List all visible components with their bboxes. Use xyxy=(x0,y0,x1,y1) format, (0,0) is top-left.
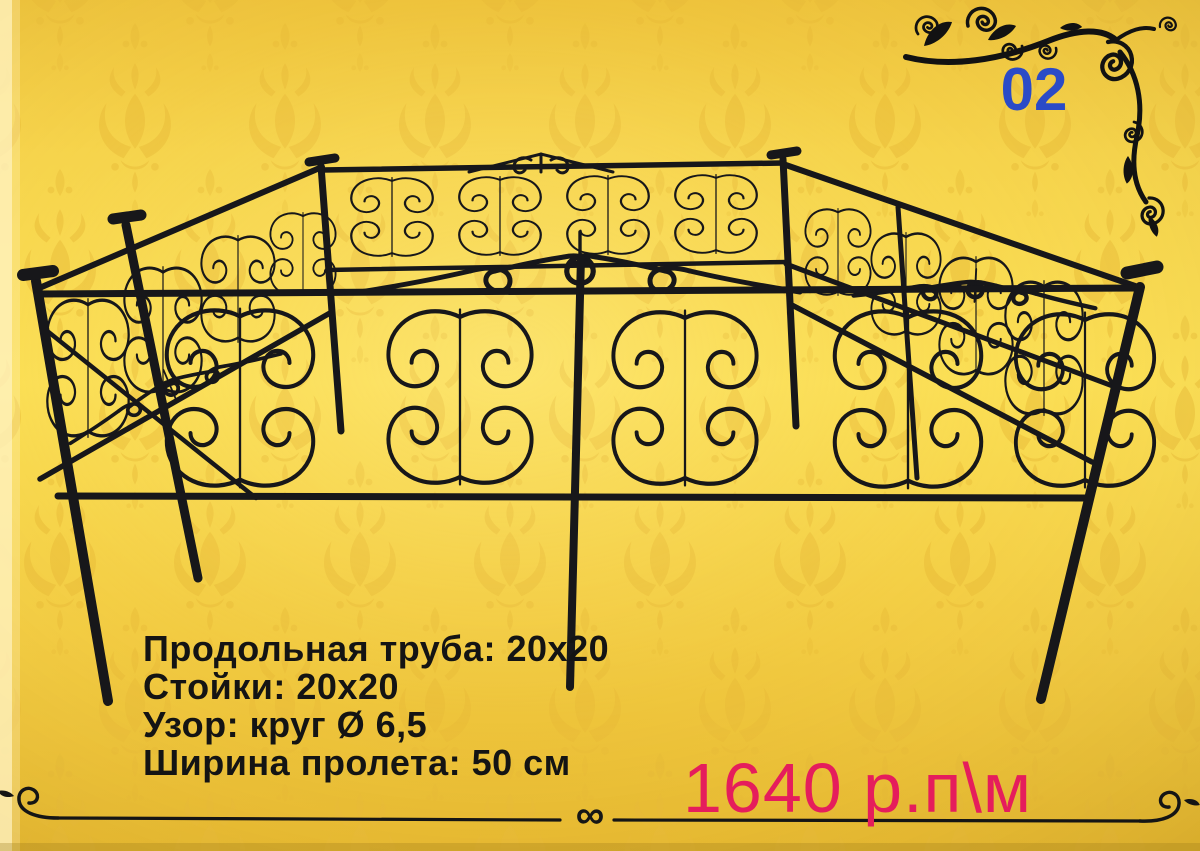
spec-line-tube: Продольная труба: 20х20 xyxy=(143,630,609,668)
spec-line-pattern: Узор: круг Ø 6,5 xyxy=(143,706,609,744)
catalog-page: Продольная труба: 20х20 Стойки: 20х20 Уз… xyxy=(0,0,1200,851)
infinity-ornament: ∞ xyxy=(568,795,612,835)
left-edge-band xyxy=(0,0,12,851)
bottom-edge-band xyxy=(0,843,1200,851)
spec-line-span: Ширина пролета: 50 см xyxy=(143,744,609,782)
specs-block: Продольная труба: 20х20 Стойки: 20х20 Уз… xyxy=(143,630,609,782)
catalog-number: 02 xyxy=(994,60,1074,120)
price-text: 1640 р.п\м xyxy=(683,753,1032,823)
spec-line-posts: Стойки: 20х20 xyxy=(143,668,609,706)
